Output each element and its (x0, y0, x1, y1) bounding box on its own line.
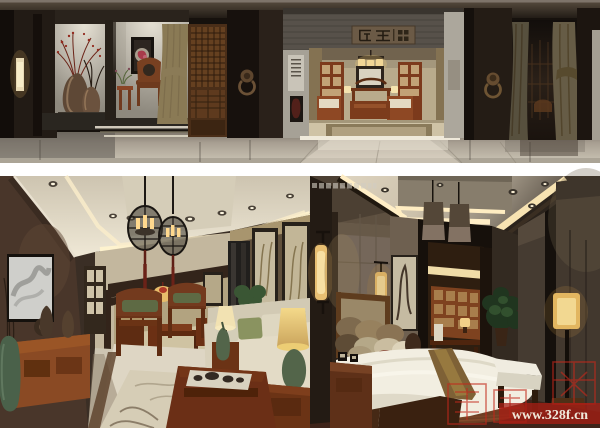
svg-text:www.328f.cn: www.328f.cn (512, 408, 588, 423)
